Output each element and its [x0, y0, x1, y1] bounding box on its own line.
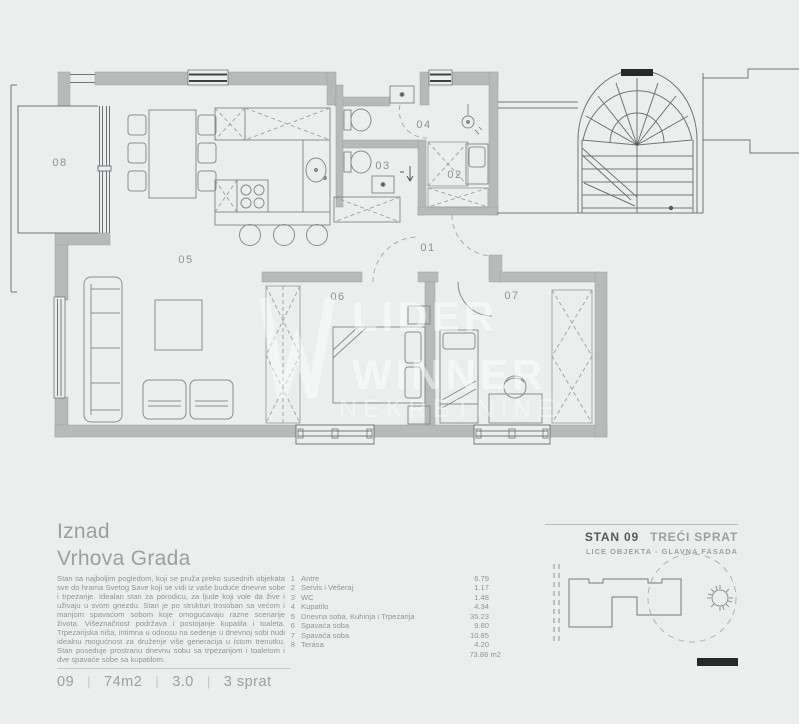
legend-row: 3 WC 1.48 — [286, 593, 502, 602]
legend-num: 5 — [286, 612, 295, 621]
unit-summary: 09 | 74m2 | 3.0 | 3 sprat — [57, 674, 272, 690]
summary-floor: 3 sprat — [224, 674, 272, 690]
room-label: 05 — [178, 254, 193, 266]
site-diagram — [542, 552, 742, 656]
legend-name: Terasa — [301, 640, 437, 649]
legend-num: 3 — [286, 593, 295, 602]
watermark: LIDER WINNER NEKRETNINE — [264, 293, 560, 423]
room-label: 03 — [375, 160, 390, 172]
summary-area: 74m2 — [104, 674, 142, 690]
unit-header-line1: STAN 09 TREĆI SPRAT — [545, 530, 738, 544]
legend-num: 2 — [286, 583, 295, 592]
legend-name: Spavaća soba — [301, 631, 437, 640]
legend-total: 73.86 m2 — [286, 650, 502, 659]
legend-num: 4 — [286, 602, 295, 611]
watermark-logo — [264, 298, 330, 397]
room-label: 07 — [504, 290, 519, 302]
room-legend: 1 Antre 6.79 2 Servis i Vešeraj 1.17 3 W… — [286, 574, 502, 659]
unit-number: STAN 09 — [585, 530, 639, 544]
unit-floor: TREĆI SPRAT — [650, 530, 738, 544]
floor-plan: 01 02 03 04 05 06 07 08 LIDER WINNER NEK… — [0, 0, 799, 512]
legend-area: 4.34 — [437, 602, 502, 611]
sun-icon — [707, 585, 733, 611]
legend-area: 6.79 — [437, 574, 502, 583]
listing-title-line2: Vrhova Grada — [57, 545, 191, 572]
summary-number: 09 — [57, 674, 74, 690]
watermark-text: WINNER — [352, 351, 546, 398]
legend-area: 4.20 — [437, 640, 502, 649]
orientation-arc — [648, 554, 736, 642]
watermark-text: NEKRETNINE — [339, 395, 560, 423]
legend-name: Servis i Vešeraj — [301, 583, 437, 592]
legend-row: 2 Servis i Vešeraj 1.17 — [286, 583, 502, 592]
summary-rooms: 3.0 — [172, 674, 194, 690]
listing-title-line1: Iznad — [57, 518, 191, 545]
watermark-text: LIDER — [352, 293, 498, 340]
listing-title: Iznad Vrhova Grada — [57, 518, 191, 572]
legend-area: 1.17 — [437, 583, 502, 592]
stair-marker — [621, 69, 653, 76]
legend-area: 1.48 — [437, 593, 502, 602]
legend-num: 1 — [286, 574, 295, 583]
legend-area: 35.23 — [437, 612, 502, 621]
room-label: 08 — [52, 157, 67, 169]
legend-row: 5 Dnevna soba, Kuhinja i Trpezarija 35.2… — [286, 612, 502, 621]
legend-row: 1 Antre 6.79 — [286, 574, 502, 583]
summary-separator: | — [155, 674, 159, 689]
legend-name: Antre — [301, 574, 437, 583]
legend-row: 6 Spavaća soba 9.80 — [286, 621, 502, 630]
legend-name: Kupatilo — [301, 602, 437, 611]
building-footprint — [569, 579, 681, 627]
floorplan-page: { "plan": { "room_labels": ["01","02","0… — [0, 0, 799, 724]
legend-row: 4 Kupatilo 4.34 — [286, 602, 502, 611]
listing-description: Stan sa najboljim pogledom, koji se pruž… — [57, 575, 285, 665]
summary-separator: | — [87, 674, 91, 689]
legend-area: 9.80 — [437, 621, 502, 630]
legend-area: 10.85 — [437, 631, 502, 640]
room-label: 02 — [447, 169, 462, 181]
legend-name: Dnevna soba, Kuhinja i Trpezarija — [301, 612, 437, 621]
legend-name: Spavaća soba — [301, 621, 437, 630]
legend-row: 8 Terasa 4.20 — [286, 640, 502, 649]
scale-bar — [697, 658, 738, 666]
legend-num: 7 — [286, 631, 295, 640]
legend-num: 8 — [286, 640, 295, 649]
legend-name: WC — [301, 593, 437, 602]
summary-separator: | — [207, 674, 211, 689]
legend-num: 6 — [286, 621, 295, 630]
room-label: 01 — [420, 242, 435, 254]
room-label: 04 — [416, 119, 431, 131]
structure-lines — [11, 69, 799, 292]
legend-row: 7 Spavaća soba 10.85 — [286, 631, 502, 640]
footer-divider — [57, 668, 290, 669]
